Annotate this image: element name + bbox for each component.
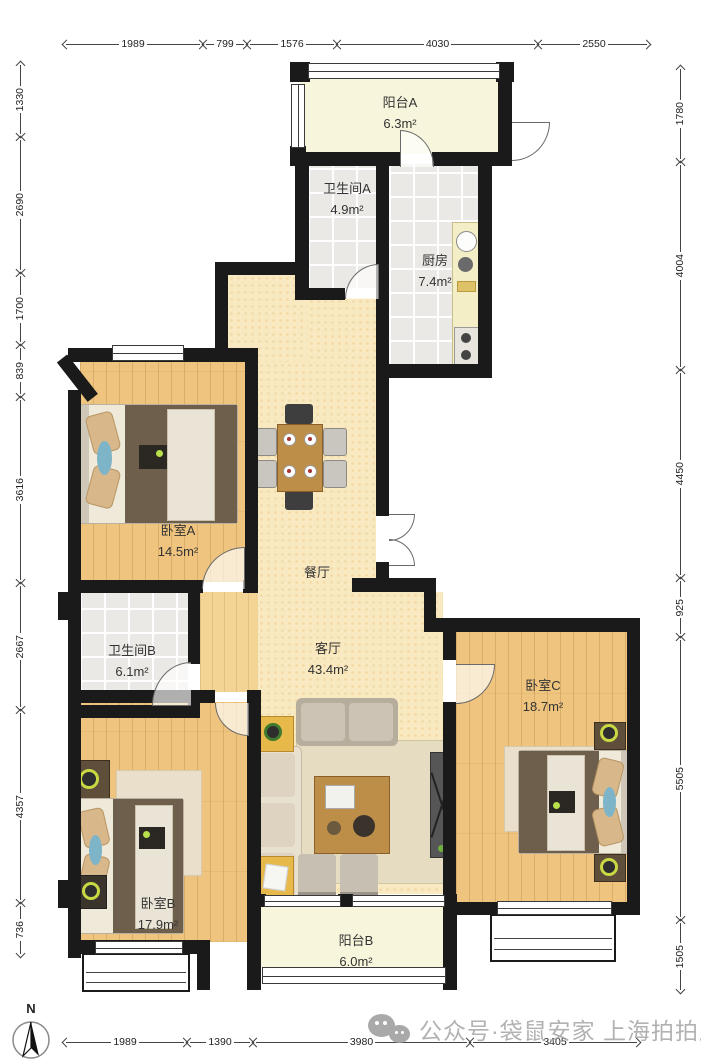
plate (283, 433, 296, 446)
stove-burner (461, 350, 471, 360)
dimension-line (20, 219, 21, 270)
window (264, 895, 341, 907)
room-label-bedroom-c: 卧室C 18.7m² (523, 675, 563, 718)
dining-chair (323, 428, 347, 456)
bay-window-glass (86, 972, 186, 983)
dimension-line (340, 44, 424, 45)
sofa-cushion (257, 753, 295, 797)
room-name: 卫生间A (323, 178, 371, 199)
window (95, 941, 183, 954)
dimension-line (680, 792, 681, 917)
napkin (262, 864, 288, 892)
dimension-segment: 4450 (672, 370, 688, 578)
pillow-round (97, 441, 112, 475)
dimension-line (680, 373, 681, 460)
dimension-line (15, 344, 25, 354)
wechat-eye (395, 1031, 398, 1034)
room-name: 卫生间B (108, 640, 156, 661)
wall-segment (424, 618, 640, 632)
dining-chair (285, 404, 313, 424)
bay-window-bedroom-c (490, 914, 616, 962)
dimension-segment: 736 (12, 903, 28, 957)
dimension-segment: 1989 (63, 36, 203, 52)
room-label-bath-b: 卫生间B 6.1m² (108, 640, 156, 683)
dimension-line (15, 396, 25, 406)
dimension-line (336, 39, 346, 49)
dimension-segment: 839 (12, 345, 28, 397)
wechat-eye (375, 1021, 379, 1025)
kitchen-stove (454, 327, 479, 367)
dining-table (277, 424, 323, 492)
window (291, 84, 305, 148)
dimension-line (675, 65, 685, 75)
dimension-line (20, 660, 21, 707)
side-table (256, 856, 294, 898)
dimension-segment: 5505 (672, 637, 688, 920)
dimension-value: 1576 (278, 39, 305, 50)
dimension-line (20, 820, 21, 900)
dimension-segment: 2550 (538, 36, 650, 52)
dimension-value: 1780 (675, 100, 686, 127)
room-label-balcony-a: 阳台A 6.3m² (383, 92, 418, 135)
room-label-kitchen: 厨房 7.4m² (418, 250, 451, 293)
room-label-living: 客厅 43.4m² (308, 638, 348, 681)
bed-a (78, 404, 238, 524)
room-name: 阳台A (383, 92, 418, 113)
wall-segment (197, 940, 210, 990)
room-area: 4.9m² (323, 199, 371, 220)
dimension-line (20, 713, 21, 793)
wall-segment (376, 364, 492, 378)
dimension-line (675, 161, 685, 171)
wall-segment (478, 152, 492, 378)
bay-window-bedroom-b (82, 953, 190, 992)
dimension-value: 4030 (424, 39, 451, 50)
dimension-line (66, 1042, 111, 1043)
dimension-segment: 2667 (12, 583, 28, 710)
wall-segment (295, 288, 345, 300)
wall-segment (68, 580, 203, 593)
lamp (600, 724, 618, 742)
lamp (79, 769, 99, 789)
room-floor-hallway (200, 592, 258, 692)
dimension-value: 1330 (15, 86, 26, 113)
wall-segment (295, 152, 309, 300)
sofa-cushion (301, 703, 345, 741)
kitchen-counter (452, 222, 481, 370)
dimension-value: 1700 (15, 295, 26, 322)
wall-segment (243, 580, 258, 593)
room-name: 餐厅 (304, 562, 330, 583)
dimension-segment: 1989 (63, 1034, 187, 1050)
sofa-cushion (257, 803, 295, 847)
sofa-main (296, 698, 398, 746)
wechat-bubble-small (389, 1025, 410, 1043)
laptop (549, 791, 575, 813)
dimension-value: 1505 (675, 943, 686, 970)
floor-plan-canvas: 阳台A 6.3m² 卫生间A 4.9m² 厨房 7.4m² 卧室A 14.5m²… (0, 0, 701, 1063)
dimension-line (20, 140, 21, 191)
room-name: 卧室B (138, 893, 178, 914)
dimension-segment: 799 (203, 36, 247, 52)
dimension-line (15, 272, 25, 282)
dimension-line (675, 577, 685, 587)
dimension-value: 2550 (580, 39, 607, 50)
coffee-table (314, 776, 390, 854)
nightstand (594, 854, 626, 882)
dimension-line (15, 582, 25, 592)
plate (304, 433, 317, 446)
room-name: 卧室A (158, 520, 198, 541)
dimension-line (680, 165, 681, 252)
dimension-segment: 2690 (12, 137, 28, 273)
window (308, 63, 500, 79)
dimension-line (675, 919, 685, 929)
pillow-round (603, 787, 616, 817)
room-area: 14.5m² (158, 541, 198, 562)
watermark: 公众号·袋鼠安家 上海拍拍屋 (368, 1012, 701, 1046)
dimension-segment: 1390 (187, 1034, 253, 1050)
dimension-line (62, 39, 72, 49)
dimension-segment: 1576 (247, 36, 337, 52)
dimension-line (15, 61, 25, 71)
dimension-line (256, 1042, 348, 1043)
dimension-value: 2667 (15, 633, 26, 660)
room-label-balcony-b: 阳台B 6.0m² (339, 930, 374, 973)
laptop-light (553, 802, 560, 809)
wall-segment (188, 580, 200, 664)
dimension-value: 1989 (111, 1037, 138, 1048)
dimension-value: 4357 (15, 793, 26, 820)
dimension-value: 1989 (119, 39, 146, 50)
side-table (256, 716, 294, 752)
dimension-line (66, 44, 119, 45)
dimension-line (20, 400, 21, 476)
dimension-line (15, 709, 25, 719)
dimension-segment: 1780 (672, 66, 688, 162)
dimension-line (675, 369, 685, 379)
wall-segment (247, 690, 261, 990)
room-area: 17.9m² (138, 914, 178, 935)
room-area: 43.4m² (308, 659, 348, 680)
dimension-line (680, 640, 681, 765)
kitchen-sink (456, 231, 477, 252)
dimension-value: 799 (214, 39, 236, 50)
dimension-segment: 1330 (12, 62, 28, 137)
room-area: 6.3m² (383, 113, 418, 134)
wall-segment (68, 705, 200, 718)
dimension-line (15, 949, 25, 959)
dimension-strip-top: 1989799157640302550 (0, 36, 701, 52)
room-label-dining: 餐厅 (304, 562, 330, 583)
bay-window-glass (494, 938, 612, 950)
dimension-strip-left: 133026901700839361626674357736 (12, 0, 28, 1063)
dimension-segment: 1700 (12, 273, 28, 345)
room-area: 6.0m² (339, 951, 374, 972)
dimension-segment: 1505 (672, 920, 688, 993)
room-name: 厨房 (418, 250, 451, 271)
wall-segment (68, 690, 215, 703)
decor-item (327, 821, 341, 835)
room-name: 阳台B (339, 930, 374, 951)
dimension-line (252, 1037, 262, 1047)
wall-segment (443, 702, 456, 915)
dimension-value: 925 (675, 597, 686, 619)
dimension-value: 4004 (675, 252, 686, 279)
wall-segment (443, 630, 456, 660)
wall-segment (290, 62, 310, 82)
plant-pot (264, 723, 282, 741)
entry-door-leaf-upper[interactable] (389, 514, 415, 541)
watermark-text: 公众号·袋鼠安家 上海拍拍屋 (419, 1012, 701, 1046)
wechat-eye (401, 1031, 404, 1034)
wall-segment (432, 152, 512, 166)
dimension-line (20, 586, 21, 633)
wall-segment (215, 262, 308, 275)
wall-segment (68, 390, 81, 590)
wall-segment (376, 366, 389, 516)
room-name: 卧室C (523, 675, 563, 696)
wall-segment (58, 880, 70, 908)
window (112, 345, 184, 361)
dimension-line (537, 39, 547, 49)
stove-burner (461, 333, 471, 343)
window (352, 895, 445, 907)
entry-door-leaf-lower[interactable] (389, 539, 415, 566)
dimension-line (202, 39, 212, 49)
wechat-eye (383, 1021, 387, 1025)
dimension-line (186, 1037, 196, 1047)
room-area: 6.1m² (108, 661, 156, 682)
dimension-line (451, 44, 535, 45)
room-name: 客厅 (308, 638, 348, 659)
wall-segment (58, 592, 70, 620)
pillow-round (89, 835, 102, 865)
plate (283, 465, 296, 478)
room-label-bedroom-b: 卧室B 17.9m² (138, 893, 178, 936)
bed-duvet (167, 409, 215, 521)
dimension-value: 2690 (15, 191, 26, 218)
decor-bowl (353, 815, 375, 837)
dimension-line (675, 985, 685, 995)
dimension-line (680, 488, 681, 575)
speaker-cone (82, 882, 100, 900)
tray (325, 785, 355, 809)
dimension-line (15, 136, 25, 146)
dimension-line (642, 39, 652, 49)
dimension-line (20, 504, 21, 580)
dimension-value: 3616 (15, 476, 26, 503)
dining-chair (323, 460, 347, 488)
sofa-cushion (349, 703, 393, 741)
plate (304, 465, 317, 478)
dimension-line (15, 902, 25, 912)
wall-segment (245, 348, 258, 593)
wechat-icon (368, 1012, 412, 1046)
dining-table-set (250, 402, 350, 512)
dimension-value: 1390 (206, 1037, 233, 1048)
wall-segment (627, 618, 640, 915)
dimension-value: 4450 (675, 460, 686, 487)
dimension-segment: 4004 (672, 162, 688, 370)
nightstand (594, 722, 626, 750)
laptop-light (156, 450, 163, 457)
laptop (139, 827, 165, 849)
dimension-value: 5505 (675, 765, 686, 792)
laptop (139, 445, 167, 469)
door-arc-balcony-a-exterior (512, 122, 550, 161)
dimension-line (62, 1037, 72, 1047)
lamp (600, 858, 618, 876)
kitchen-pot (458, 257, 473, 272)
dimension-line (246, 39, 256, 49)
room-label-bedroom-a: 卧室A 14.5m² (158, 520, 198, 563)
dimension-segment: 3616 (12, 397, 28, 583)
cutting-board (457, 281, 476, 292)
wall-segment (376, 152, 389, 368)
dimension-strip-right: 17804004445092555051505 (672, 0, 688, 1063)
bed-c (518, 750, 632, 854)
room-area: 7.4m² (418, 271, 451, 292)
dimension-segment: 4357 (12, 710, 28, 903)
room-label-bath-a: 卫生间A 4.9m² (323, 178, 371, 221)
dimension-line (675, 636, 685, 646)
window (497, 901, 612, 915)
laptop-light (143, 831, 150, 838)
dimension-value: 736 (15, 919, 26, 941)
dimension-segment: 4030 (337, 36, 538, 52)
room-floor-dining-nook (308, 298, 376, 365)
dimension-line (147, 44, 200, 45)
dining-chair (285, 490, 313, 510)
dimension-segment: 925 (672, 578, 688, 637)
dimension-line (680, 280, 681, 367)
dimension-value: 839 (15, 360, 26, 382)
wall-segment (215, 262, 228, 362)
room-area: 18.7m² (523, 696, 563, 717)
